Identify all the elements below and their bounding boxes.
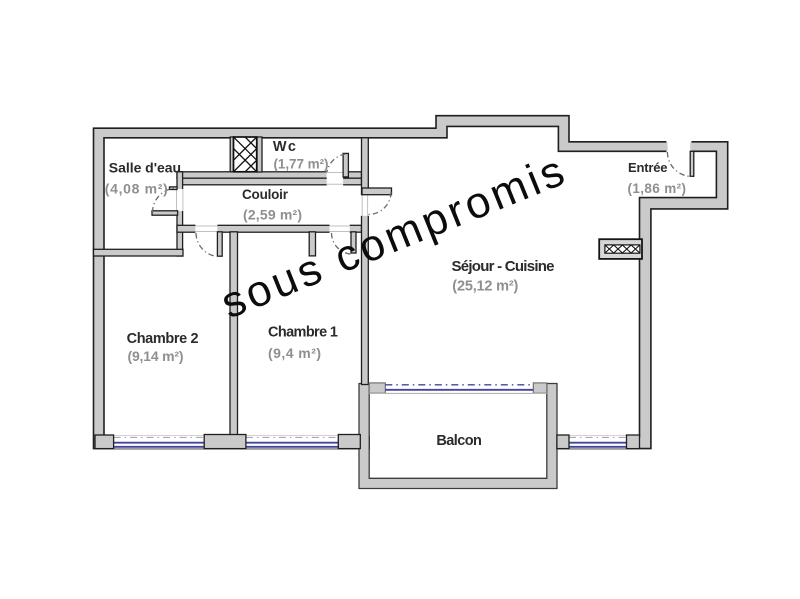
svg-text:(4,08 m²): (4,08 m²) [105, 180, 168, 196]
svg-text:Séjour - Cuisine: Séjour - Cuisine [452, 258, 555, 275]
svg-text:Couloir: Couloir [242, 187, 289, 202]
svg-text:Balcon: Balcon [436, 433, 482, 449]
svg-text:(9,4 m²): (9,4 m²) [268, 345, 321, 361]
svg-text:Wc: Wc [273, 139, 296, 155]
svg-text:Chambre 1: Chambre 1 [268, 324, 338, 340]
svg-text:(9,14 m²): (9,14 m²) [128, 348, 184, 364]
svg-text:(1,77 m²): (1,77 m²) [274, 156, 329, 171]
svg-text:(1,86 m²): (1,86 m²) [628, 181, 687, 196]
svg-text:Salle d'eau: Salle d'eau [109, 159, 181, 175]
svg-text:Entrée: Entrée [628, 160, 668, 175]
svg-text:Chambre 2: Chambre 2 [127, 331, 199, 347]
svg-text:(2,59 m²): (2,59 m²) [243, 206, 302, 222]
svg-text:(25,12 m²): (25,12 m²) [452, 278, 518, 294]
